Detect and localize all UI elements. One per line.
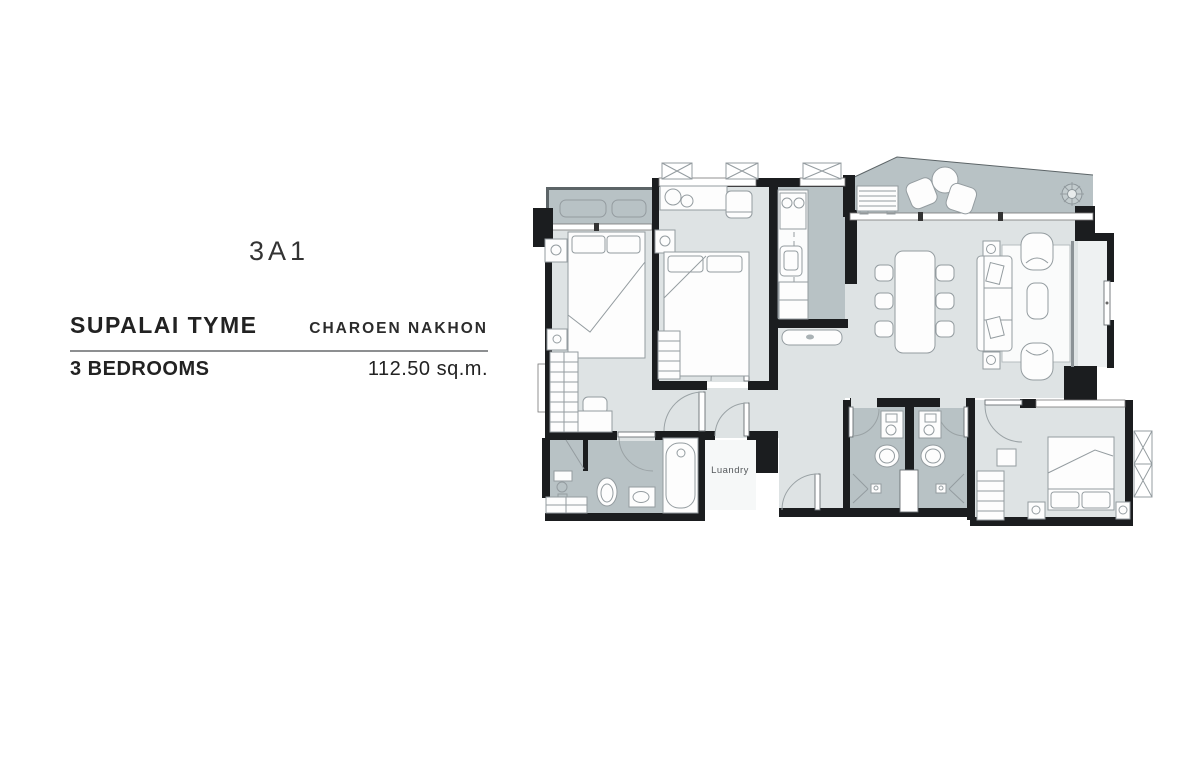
corridor-door-leaf [699, 392, 705, 431]
console-bowl [806, 335, 814, 340]
bathroom-left-door-gap [851, 397, 877, 408]
nightstand-icon [547, 329, 567, 350]
dining-chair-icon [875, 321, 893, 337]
window-mullion [918, 212, 923, 221]
side-table-icon [997, 449, 1016, 466]
corridor-floor [652, 388, 782, 438]
wardrobe-icon [977, 471, 1004, 520]
desk-icon [578, 411, 612, 432]
floor-plan-drawing: Luandry [0, 0, 1200, 759]
washbasin-icon [919, 411, 941, 438]
balcony-left-rail [546, 187, 654, 190]
armchair-icon [1021, 233, 1053, 270]
laundry-label: Luandry [711, 465, 749, 476]
foyer-floor [1078, 241, 1107, 367]
dining-chair-icon [875, 265, 893, 281]
master-window [1036, 400, 1125, 407]
pillow-icon [707, 256, 742, 272]
dining-chair-icon [936, 265, 954, 281]
master-bedroom-furniture [977, 437, 1130, 520]
ac-compressor-icon [857, 186, 898, 214]
nightstand-icon [1116, 502, 1130, 519]
shower-icon [871, 484, 881, 493]
master-ac-ledge-icon [1134, 431, 1152, 497]
dining-chair-icon [875, 293, 893, 309]
chair-icon [726, 191, 752, 218]
bathroom-main-door-leaf [618, 432, 655, 437]
cooktop-icon [780, 193, 806, 229]
balcony-left-rail-side [546, 187, 549, 210]
washbasin-icon [881, 411, 903, 438]
nightstand-icon [1028, 502, 1045, 519]
shower-icon [936, 484, 946, 493]
toilet-icon [875, 445, 899, 467]
washbasin-icon [554, 471, 572, 481]
bathroom-left-door-leaf [849, 407, 853, 437]
laundry-door-leaf [744, 403, 749, 436]
bedroom1-balcony-window [552, 224, 652, 230]
pillow-icon [1051, 492, 1079, 508]
living-passage-floor [845, 284, 857, 398]
window-mullion [998, 212, 1003, 221]
living-window [850, 213, 1093, 220]
plumbing-chase [900, 470, 918, 512]
toilet-icon [921, 445, 945, 467]
dining-chair-icon [936, 293, 954, 309]
floor-plan-page: 3A1 SUPALAI TYME CHAROEN NAKHON 3 BEDROO… [0, 0, 1200, 759]
hall-door-leaf [815, 474, 820, 510]
living-furniture [977, 233, 1070, 380]
pillow-icon [572, 236, 605, 253]
master-door-leaf [985, 400, 1022, 405]
dining-table-icon [895, 251, 935, 353]
nightstand-icon [655, 230, 675, 253]
balcony-left-floor [549, 190, 652, 227]
pillow-icon [1082, 492, 1110, 508]
pillow-icon [607, 236, 640, 253]
side-table-icon [983, 352, 1000, 369]
side-table-icon [983, 241, 1000, 258]
ac-ledge-icon [662, 163, 841, 179]
nightstand-icon [545, 239, 567, 262]
entrance-door-handle [1106, 302, 1109, 305]
dining-chair-icon [936, 321, 954, 337]
coffee-table-icon [1027, 283, 1048, 319]
bathroom-right-door-gap [940, 397, 966, 408]
window-mullion [594, 223, 599, 231]
wardrobe-icon [658, 331, 680, 379]
armchair-icon [1021, 343, 1053, 380]
bathroom-right-door-leaf [964, 407, 968, 437]
foyer-partition-line [1071, 241, 1074, 367]
